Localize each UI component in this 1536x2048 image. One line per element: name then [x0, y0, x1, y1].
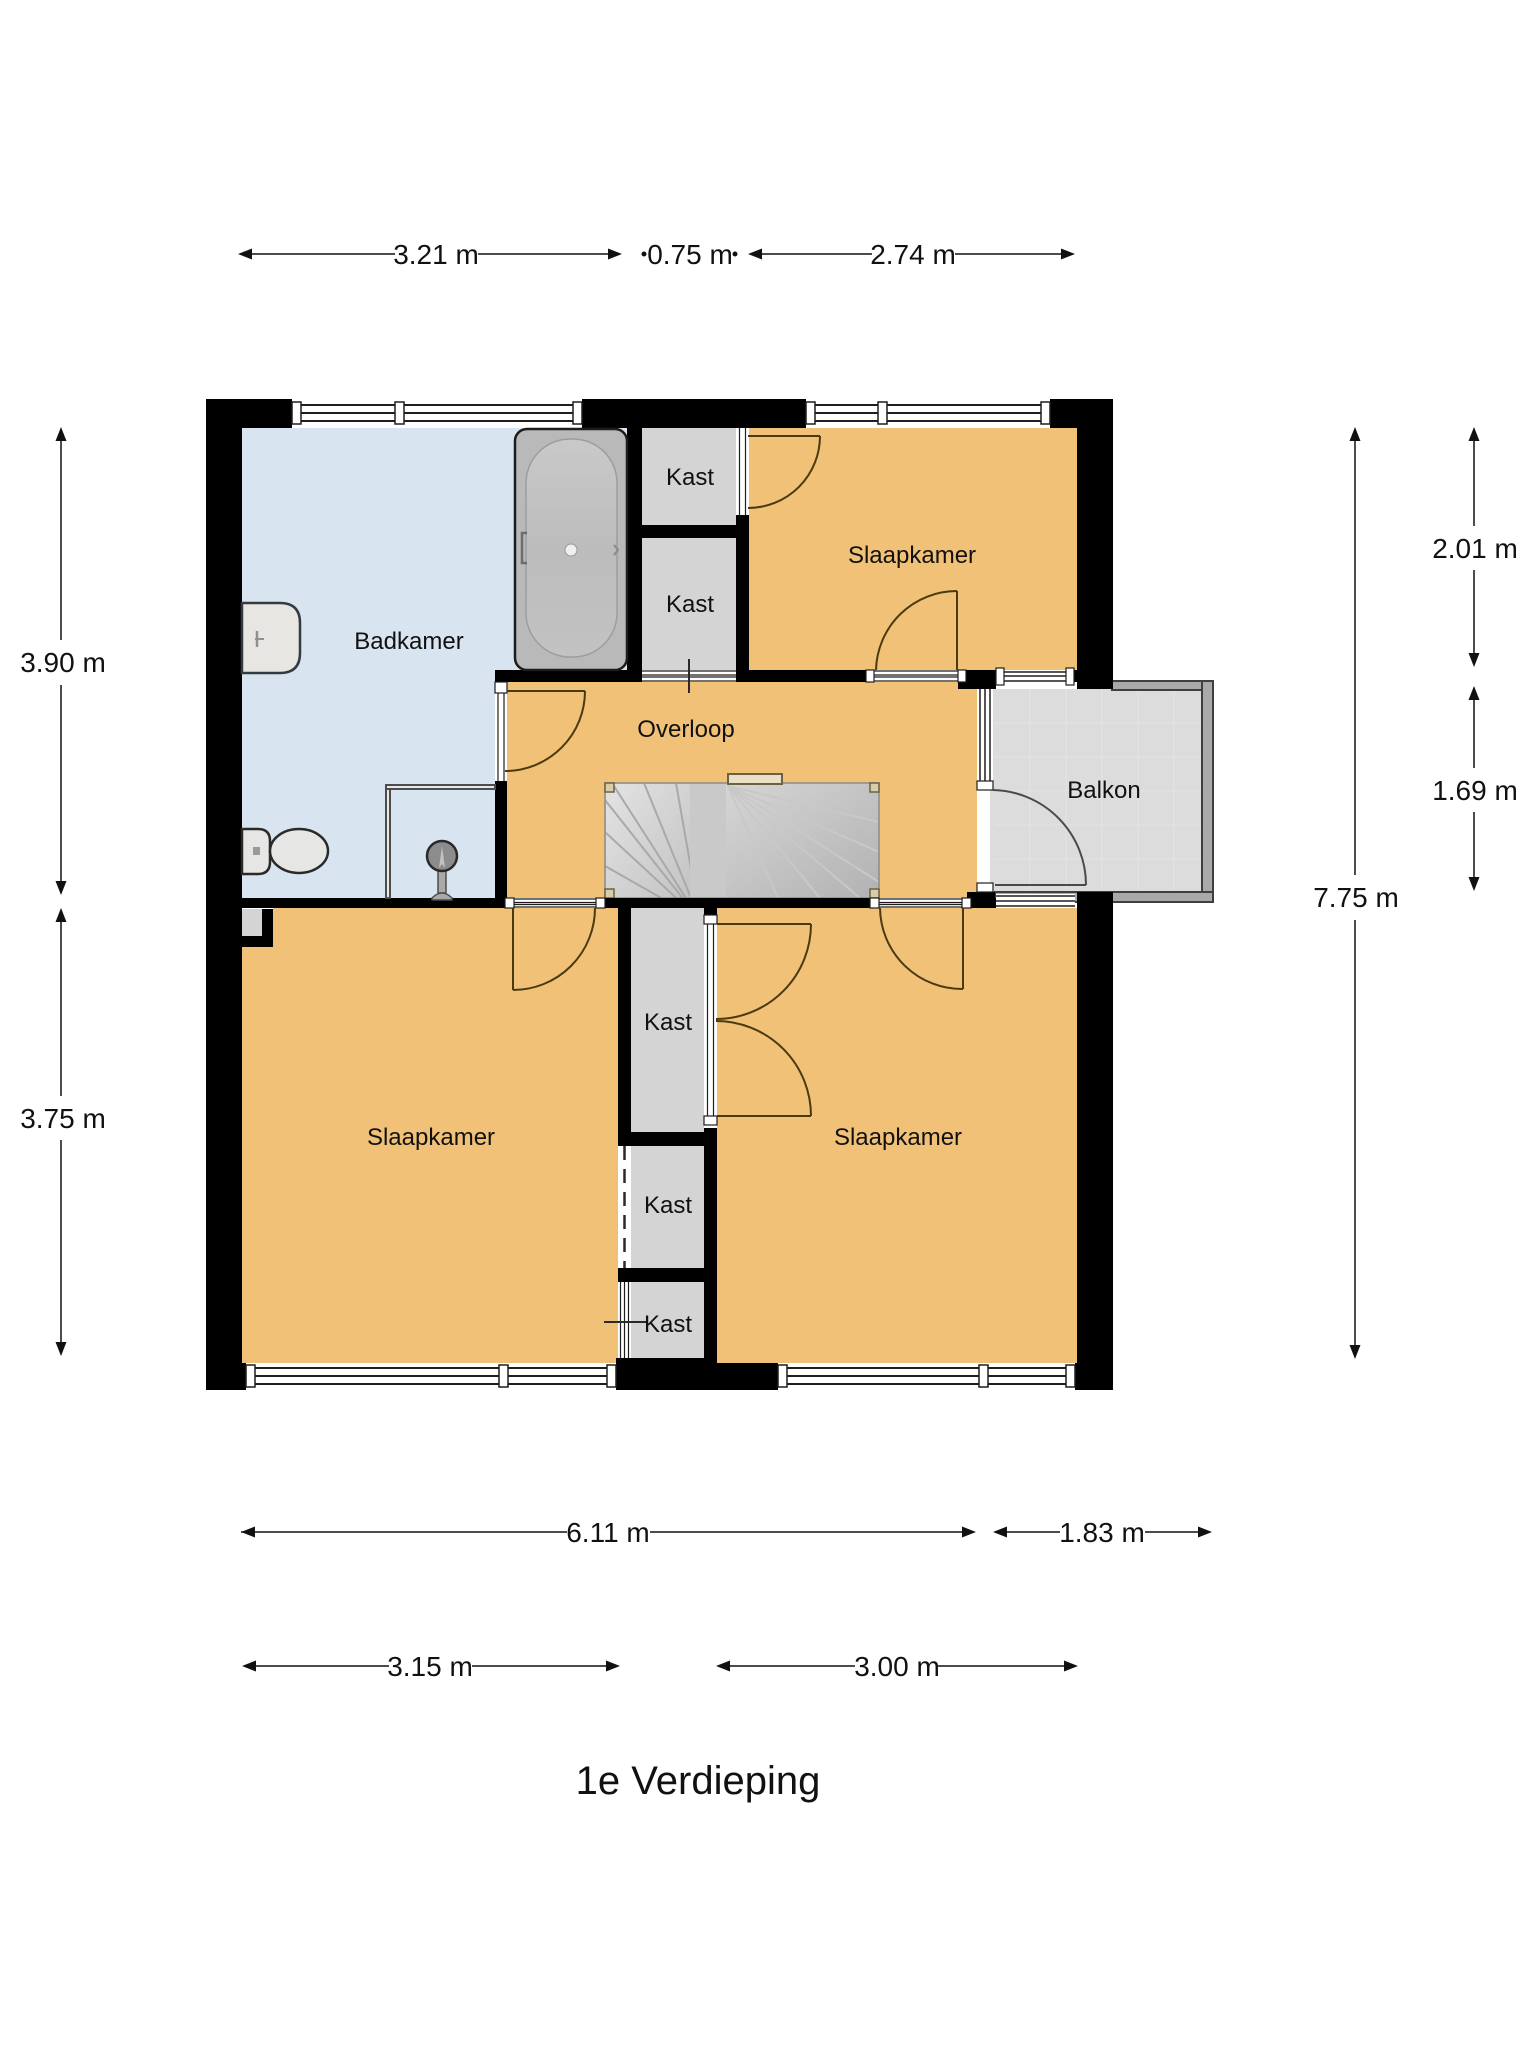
svg-text:2.01 m: 2.01 m [1432, 533, 1518, 564]
svg-text:1.83 m: 1.83 m [1059, 1517, 1145, 1548]
svg-text:2.74 m: 2.74 m [870, 239, 956, 270]
svg-text:3.21 m: 3.21 m [393, 239, 479, 270]
svg-text:3.15 m: 3.15 m [387, 1651, 473, 1682]
svg-text:Balkon: Balkon [1067, 777, 1140, 804]
svg-text:Slaapkamer: Slaapkamer [848, 542, 976, 569]
svg-text:7.75 m: 7.75 m [1313, 882, 1399, 913]
svg-text:Kast: Kast [666, 464, 714, 491]
svg-text:Slaapkamer: Slaapkamer [367, 1124, 495, 1151]
svg-text:3.90 m: 3.90 m [20, 647, 106, 678]
svg-text:6.11 m: 6.11 m [566, 1517, 650, 1548]
svg-text:Slaapkamer: Slaapkamer [834, 1124, 962, 1151]
svg-text:1e Verdieping: 1e Verdieping [576, 1759, 821, 1803]
svg-text:Badkamer: Badkamer [354, 628, 463, 655]
svg-text:Kast: Kast [666, 591, 714, 618]
svg-text:3.75 m: 3.75 m [20, 1103, 106, 1134]
svg-text:Kast: Kast [644, 1311, 692, 1338]
svg-text:Kast: Kast [644, 1009, 692, 1036]
svg-text:Overloop: Overloop [637, 716, 734, 743]
svg-text:1.69 m: 1.69 m [1432, 775, 1518, 806]
svg-text:3.00 m: 3.00 m [854, 1651, 940, 1682]
svg-text:0.75 m: 0.75 m [647, 239, 733, 270]
svg-text:Kast: Kast [644, 1192, 692, 1219]
